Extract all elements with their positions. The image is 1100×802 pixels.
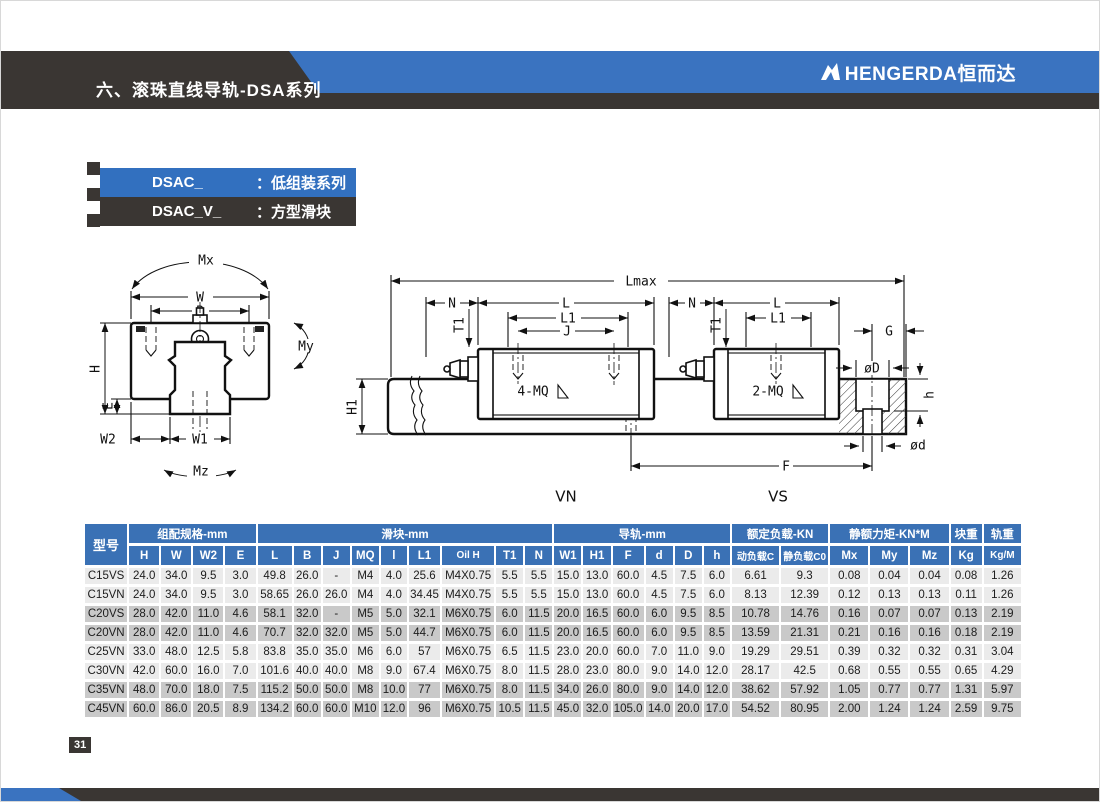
value-cell: 7.5 <box>675 587 702 603</box>
value-cell: 23.0 <box>554 644 581 660</box>
column-group-header: 组配规格-mm <box>129 524 255 543</box>
column-subheader: Kg <box>951 546 982 565</box>
view-label-vs: VS <box>768 488 788 506</box>
table-row: C25VN33.048.012.55.883.835.035.0M66.057M… <box>85 644 1021 660</box>
value-cell: 0.13 <box>910 587 948 603</box>
value-cell: 4.0 <box>381 568 407 584</box>
value-cell: 24.0 <box>129 587 159 603</box>
value-cell: 9.3 <box>781 568 828 584</box>
value-cell: 11.5 <box>525 644 552 660</box>
value-cell: 58.1 <box>258 606 292 622</box>
value-cell: 42.0 <box>161 606 191 622</box>
value-cell: 7.0 <box>646 644 673 660</box>
value-cell: 57.92 <box>781 682 828 698</box>
value-cell: 60.0 <box>161 663 191 679</box>
value-cell: 80.95 <box>781 701 828 717</box>
value-cell: 40.0 <box>323 663 350 679</box>
column-subheader: Mx <box>830 546 868 565</box>
carriage-vn <box>478 349 654 419</box>
value-cell: 0.08 <box>830 568 868 584</box>
column-subheader: Oil H <box>442 546 494 565</box>
value-cell: 0.13 <box>870 587 908 603</box>
value-cell: 9.0 <box>646 663 673 679</box>
value-cell: 0.31 <box>951 644 982 660</box>
column-subheader: H1 <box>583 546 610 565</box>
value-cell: 0.16 <box>910 625 948 641</box>
value-cell: 0.77 <box>910 682 948 698</box>
column-header-model: 型号 <box>85 524 127 565</box>
checker-square <box>87 188 100 201</box>
model-cell: C35VN <box>85 682 127 698</box>
value-cell: M6X0.75 <box>442 644 494 660</box>
dim-label-my: My <box>298 340 314 355</box>
value-cell: 6.0 <box>704 587 730 603</box>
value-cell: 35.0 <box>323 644 350 660</box>
value-cell: 1.05 <box>830 682 868 698</box>
value-cell: 67.4 <box>409 663 440 679</box>
value-cell: 34.0 <box>161 568 191 584</box>
value-cell: 1.24 <box>910 701 948 717</box>
value-cell: 32.0 <box>294 625 321 641</box>
table-body: C15VS24.034.09.53.049.826.0-M44.025.6M4X… <box>85 568 1021 717</box>
value-cell: 3.0 <box>225 568 255 584</box>
value-cell: 0.65 <box>951 663 982 679</box>
series-desc: 方型滑块 <box>271 201 331 222</box>
value-cell: 4.5 <box>646 568 673 584</box>
column-subheader: D <box>675 546 702 565</box>
value-cell: 26.0 <box>583 682 610 698</box>
table-head: 型号组配规格-mm滑块-mm导轨-mm额定负载-KN静额力矩-KN*M块重轨重H… <box>85 524 1021 565</box>
series-desc: 低组装系列 <box>271 172 346 193</box>
value-cell: 11.5 <box>525 682 552 698</box>
column-subheader: H <box>129 546 159 565</box>
value-cell: 50.0 <box>294 682 321 698</box>
value-cell: 5.0 <box>381 625 407 641</box>
value-cell: M5 <box>352 625 379 641</box>
value-cell: 38.62 <box>732 682 779 698</box>
value-cell: 6.0 <box>496 625 523 641</box>
value-cell: 29.51 <box>781 644 828 660</box>
value-cell: 6.0 <box>704 568 730 584</box>
value-cell: 28.0 <box>554 663 581 679</box>
dim-label-l1-right: L1 <box>770 312 786 327</box>
model-cell: C25VN <box>85 644 127 660</box>
series-sep: ： <box>256 201 271 222</box>
value-cell: 13.59 <box>732 625 779 641</box>
table-row: C15VS24.034.09.53.049.826.0-M44.025.6M4X… <box>85 568 1021 584</box>
value-cell: 80.0 <box>613 663 644 679</box>
value-cell: 9.5 <box>193 587 223 603</box>
value-cell: 0.16 <box>830 606 868 622</box>
dim-label-l-left: L <box>562 297 570 312</box>
value-cell: 9.5 <box>193 568 223 584</box>
column-subheader: L <box>258 546 292 565</box>
value-cell: 9.0 <box>381 663 407 679</box>
value-cell: 4.5 <box>646 587 673 603</box>
value-cell: 0.07 <box>870 606 908 622</box>
value-cell: 96 <box>409 701 440 717</box>
value-cell: 14.0 <box>646 701 673 717</box>
value-cell: M4 <box>352 568 379 584</box>
value-cell: 17.0 <box>704 701 730 717</box>
value-cell: 11.0 <box>193 606 223 622</box>
value-cell: 86.0 <box>161 701 191 717</box>
value-cell: 6.0 <box>496 606 523 622</box>
value-cell: M6X0.75 <box>442 606 494 622</box>
series-code: DSAC_ <box>152 174 256 191</box>
value-cell: 28.0 <box>129 606 159 622</box>
value-cell: 16.5 <box>583 606 610 622</box>
value-cell: 20.5 <box>193 701 223 717</box>
value-cell: 0.68 <box>830 663 868 679</box>
dim-label-h: H <box>89 365 104 373</box>
value-cell: 60.0 <box>129 701 159 717</box>
value-cell: 26.0 <box>323 587 350 603</box>
value-cell: 83.8 <box>258 644 292 660</box>
value-cell: 28.0 <box>129 625 159 641</box>
dim-label-n-right: N <box>688 297 696 312</box>
value-cell: 7.5 <box>225 682 255 698</box>
column-group-header: 块重 <box>951 524 982 543</box>
value-cell: 80.0 <box>613 682 644 698</box>
value-cell: 9.0 <box>646 682 673 698</box>
view-label-vn: VN <box>555 488 576 506</box>
value-cell: M8 <box>352 663 379 679</box>
value-cell: 34.0 <box>554 682 581 698</box>
value-cell: M5 <box>352 606 379 622</box>
value-cell: 8.9 <box>225 701 255 717</box>
value-cell: M6X0.75 <box>442 682 494 698</box>
value-cell: 7.5 <box>675 568 702 584</box>
value-cell: 0.39 <box>830 644 868 660</box>
dim-label-l-right: L <box>773 297 781 312</box>
value-cell: 0.08 <box>951 568 982 584</box>
value-cell: 0.55 <box>910 663 948 679</box>
page-number: 31 <box>69 737 91 753</box>
column-group-header: 导轨-mm <box>554 524 730 543</box>
value-cell: 134.2 <box>258 701 292 717</box>
value-cell: M6 <box>352 644 379 660</box>
brand-logo-icon <box>818 61 842 83</box>
series-sep: ： <box>256 172 271 193</box>
dim-label-2mq: 2-MQ <box>752 385 783 400</box>
value-cell: 11.5 <box>525 625 552 641</box>
value-cell: 0.18 <box>951 625 982 641</box>
value-cell: 50.0 <box>323 682 350 698</box>
value-cell: 0.11 <box>951 587 982 603</box>
value-cell: 0.07 <box>910 606 948 622</box>
value-cell: 0.12 <box>830 587 868 603</box>
value-cell: 4.6 <box>225 625 255 641</box>
dim-label-w1: W1 <box>192 433 208 448</box>
value-cell: 7.0 <box>225 663 255 679</box>
value-cell: 16.0 <box>193 663 223 679</box>
value-cell: 13.0 <box>583 587 610 603</box>
dim-label-t1-left: T1 <box>453 317 468 333</box>
value-cell: 15.0 <box>554 568 581 584</box>
value-cell: 0.21 <box>830 625 868 641</box>
value-cell: 60.0 <box>613 606 644 622</box>
value-cell: 5.8 <box>225 644 255 660</box>
series-tag-square-block: DSAC_V_：方型滑块 <box>100 197 356 226</box>
value-cell: 42.0 <box>161 625 191 641</box>
value-cell: 5.97 <box>984 682 1021 698</box>
value-cell: 10.78 <box>732 606 779 622</box>
value-cell: 0.04 <box>870 568 908 584</box>
value-cell: 32.0 <box>323 625 350 641</box>
value-cell: 5.5 <box>496 587 523 603</box>
value-cell: 16.5 <box>583 625 610 641</box>
column-subheader: W1 <box>554 546 581 565</box>
column-subheader: B <box>294 546 321 565</box>
value-cell: 5.0 <box>381 606 407 622</box>
value-cell: 105.0 <box>613 701 644 717</box>
value-cell: 26.0 <box>294 568 321 584</box>
model-cell: C20VN <box>85 625 127 641</box>
value-cell: 8.13 <box>732 587 779 603</box>
value-cell: 54.52 <box>732 701 779 717</box>
dim-label-dia-D: øD <box>864 362 880 377</box>
column-group-header: 静额力矩-KN*M <box>830 524 948 543</box>
value-cell: 0.04 <box>910 568 948 584</box>
value-cell: 10.0 <box>381 682 407 698</box>
value-cell: 60.0 <box>323 701 350 717</box>
footer-band <box>1 788 1100 801</box>
value-cell: 0.77 <box>870 682 908 698</box>
value-cell: 8.0 <box>496 663 523 679</box>
value-cell: 15.0 <box>554 587 581 603</box>
value-cell: 25.6 <box>409 568 440 584</box>
page-title: 六、滚珠直线导轨-DSA系列 <box>96 76 322 101</box>
value-cell: 6.61 <box>732 568 779 584</box>
column-subheader: Mz <box>910 546 948 565</box>
column-subheader: T1 <box>496 546 523 565</box>
value-cell: 12.0 <box>704 663 730 679</box>
value-cell: 0.55 <box>870 663 908 679</box>
value-cell: 60.0 <box>613 568 644 584</box>
spec-table: 型号组配规格-mm滑块-mm导轨-mm额定负载-KN静额力矩-KN*M块重轨重H… <box>83 521 1023 720</box>
model-cell: C45VN <box>85 701 127 717</box>
table-row: C15VN24.034.09.53.058.6526.026.0M44.034.… <box>85 587 1021 603</box>
column-subheader: N <box>525 546 552 565</box>
column-subheader: h <box>704 546 730 565</box>
value-cell: 0.32 <box>910 644 948 660</box>
value-cell: 4.29 <box>984 663 1021 679</box>
value-cell: M4X0.75 <box>442 568 494 584</box>
value-cell: 2.19 <box>984 606 1021 622</box>
column-subheader: F <box>613 546 644 565</box>
dim-label-h1: H1 <box>346 399 361 415</box>
value-cell: M8 <box>352 682 379 698</box>
value-cell: M6X0.75 <box>442 663 494 679</box>
table-row: C30VN42.060.016.07.0101.640.040.0M89.067… <box>85 663 1021 679</box>
grease-nipple <box>704 357 714 381</box>
column-subheader: W2 <box>193 546 223 565</box>
column-subheader: J <box>323 546 350 565</box>
value-cell: M6X0.75 <box>442 625 494 641</box>
dim-label-lmax: Lmax <box>625 275 656 290</box>
dim-label-j: J <box>563 325 571 340</box>
value-cell: 11.0 <box>193 625 223 641</box>
value-cell: 42.0 <box>129 663 159 679</box>
cross-section-view: Mx W B <box>89 253 319 480</box>
value-cell: 12.39 <box>781 587 828 603</box>
value-cell: 20.0 <box>583 644 610 660</box>
value-cell: 8.5 <box>704 606 730 622</box>
value-cell: 33.0 <box>129 644 159 660</box>
value-cell: 28.17 <box>732 663 779 679</box>
brand-logo: HENGERDA恒而达 <box>818 59 1016 86</box>
value-cell: 70.7 <box>258 625 292 641</box>
dim-label-4mq: 4-MQ <box>517 385 548 400</box>
value-cell: 42.5 <box>781 663 828 679</box>
value-cell: 8.0 <box>496 682 523 698</box>
model-cell: C20VS <box>85 606 127 622</box>
table-row: C35VN48.070.018.07.5115.250.050.0M810.07… <box>85 682 1021 698</box>
value-cell: 70.0 <box>161 682 191 698</box>
dim-label-f: F <box>782 460 790 475</box>
value-cell: 14.0 <box>675 663 702 679</box>
value-cell: 6.0 <box>381 644 407 660</box>
value-cell: 14.0 <box>675 682 702 698</box>
value-cell: 60.0 <box>294 701 321 717</box>
checker-square <box>87 162 100 175</box>
table-row: C20VN28.042.011.04.670.732.032.0M55.044.… <box>85 625 1021 641</box>
value-cell: 11.5 <box>525 701 552 717</box>
value-cell: 2.19 <box>984 625 1021 641</box>
value-cell: 20.0 <box>554 625 581 641</box>
value-cell: 49.8 <box>258 568 292 584</box>
column-subheader: L1 <box>409 546 440 565</box>
value-cell: 40.0 <box>294 663 321 679</box>
column-subheader: My <box>870 546 908 565</box>
value-cell: M4X0.75 <box>442 587 494 603</box>
value-cell: 58.65 <box>258 587 292 603</box>
value-cell: 5.5 <box>525 587 552 603</box>
value-cell: 23.0 <box>583 663 610 679</box>
table-row: C45VN60.086.020.58.9134.260.060.0M1012.0… <box>85 701 1021 717</box>
column-subheader: d <box>646 546 673 565</box>
value-cell: M4 <box>352 587 379 603</box>
column-subheader: 动负载C <box>732 546 779 565</box>
column-group-header: 额定负载-KN <box>732 524 828 543</box>
column-subheader: Kg/M <box>984 546 1021 565</box>
value-cell: 12.5 <box>193 644 223 660</box>
value-cell: 0.16 <box>870 625 908 641</box>
value-cell: 48.0 <box>161 644 191 660</box>
value-cell: 77 <box>409 682 440 698</box>
value-cell: 19.29 <box>732 644 779 660</box>
value-cell: M6X0.75 <box>442 701 494 717</box>
value-cell: 9.5 <box>675 625 702 641</box>
value-cell: - <box>323 568 350 584</box>
value-cell: 12.0 <box>704 682 730 698</box>
value-cell: 4.0 <box>381 587 407 603</box>
value-cell: 2.59 <box>951 701 982 717</box>
value-cell: 1.31 <box>951 682 982 698</box>
value-cell: 20.0 <box>675 701 702 717</box>
dim-label-h-small: h <box>923 391 938 399</box>
value-cell: 1.26 <box>984 587 1021 603</box>
value-cell: 1.26 <box>984 568 1021 584</box>
brand-band: HENGERDA恒而达 <box>289 51 1100 93</box>
value-cell: 3.0 <box>225 587 255 603</box>
value-cell: 60.0 <box>613 625 644 641</box>
value-cell: M10 <box>352 701 379 717</box>
value-cell: 11.0 <box>675 644 702 660</box>
value-cell: 9.0 <box>704 644 730 660</box>
value-cell: 0.32 <box>870 644 908 660</box>
checker-square <box>87 214 100 227</box>
column-subheader: l <box>381 546 407 565</box>
series-code: DSAC_V_ <box>152 203 256 220</box>
model-cell: C30VN <box>85 663 127 679</box>
dim-label-e: E <box>102 402 117 410</box>
value-cell: 6.0 <box>646 606 673 622</box>
value-cell: 3.04 <box>984 644 1021 660</box>
value-cell: 5.5 <box>496 568 523 584</box>
value-cell: 44.7 <box>409 625 440 641</box>
value-cell: 48.0 <box>129 682 159 698</box>
grease-nipple <box>468 357 478 381</box>
value-cell: 1.24 <box>870 701 908 717</box>
value-cell: 34.0 <box>161 587 191 603</box>
value-cell: 24.0 <box>129 568 159 584</box>
side-view: 4-MQ 2-MQ Lmax <box>346 273 938 506</box>
value-cell: 11.5 <box>525 606 552 622</box>
value-cell: 101.6 <box>258 663 292 679</box>
value-cell: 26.0 <box>294 587 321 603</box>
value-cell: 10.5 <box>496 701 523 717</box>
value-cell: 21.31 <box>781 625 828 641</box>
value-cell: 11.5 <box>525 663 552 679</box>
value-cell: 32.1 <box>409 606 440 622</box>
value-cell: 35.0 <box>294 644 321 660</box>
value-cell: 9.75 <box>984 701 1021 717</box>
value-cell: 12.0 <box>381 701 407 717</box>
value-cell: 5.5 <box>525 568 552 584</box>
value-cell: - <box>323 606 350 622</box>
value-cell: 13.0 <box>583 568 610 584</box>
series-tag-low-assembly: DSAC_：低组装系列 <box>100 168 356 197</box>
value-cell: 6.0 <box>646 625 673 641</box>
value-cell: 60.0 <box>613 587 644 603</box>
catalog-page: HENGERDA恒而达 六、滚珠直线导轨-DSA系列 DSAC_：低组装系列 D… <box>0 0 1100 802</box>
value-cell: 2.00 <box>830 701 868 717</box>
value-cell: 115.2 <box>258 682 292 698</box>
dim-label-g: G <box>885 325 893 340</box>
value-cell: 60.0 <box>613 644 644 660</box>
value-cell: 32.0 <box>583 701 610 717</box>
column-subheader: W <box>161 546 191 565</box>
column-group-header: 轨重 <box>984 524 1021 543</box>
brand-text: HENGERDA恒而达 <box>845 59 1016 86</box>
value-cell: 9.5 <box>675 606 702 622</box>
technical-drawing: Mx W B <box>56 239 1046 506</box>
value-cell: 0.13 <box>951 606 982 622</box>
value-cell: 34.45 <box>409 587 440 603</box>
dim-label-mx: Mx <box>198 254 214 269</box>
value-cell: 32.0 <box>294 606 321 622</box>
rail-section <box>169 342 231 414</box>
value-cell: 6.5 <box>496 644 523 660</box>
dim-label-t1-right: T1 <box>710 317 725 333</box>
column-subheader: 静负载C0 <box>781 546 828 565</box>
column-group-header: 滑块-mm <box>258 524 553 543</box>
column-subheader: E <box>225 546 255 565</box>
value-cell: 14.76 <box>781 606 828 622</box>
value-cell: 45.0 <box>554 701 581 717</box>
